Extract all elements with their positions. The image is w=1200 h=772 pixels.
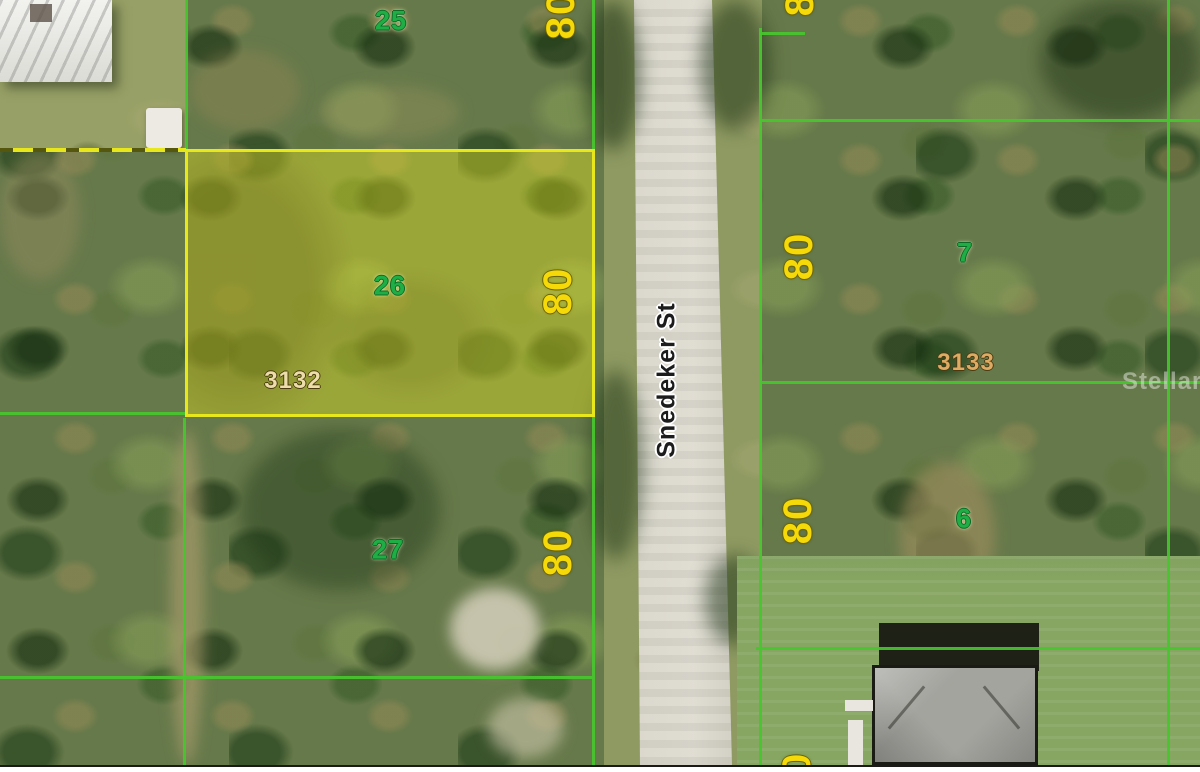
overhanging-trees — [588, 370, 643, 560]
sand-patch — [488, 698, 563, 758]
parcel-boundary-line — [756, 647, 1200, 650]
lot-number-label: 26 — [374, 273, 406, 300]
dimension-label: 80 — [780, 0, 820, 16]
parcel-boundary-line — [183, 418, 186, 765]
parcel-boundary-line — [0, 676, 592, 679]
parcel-boundary-line — [0, 412, 186, 415]
dimension-label: 80 — [538, 528, 578, 577]
building-roof-section — [30, 4, 52, 22]
watermark: StellarMLS — [1122, 368, 1200, 396]
parcel-boundary-line — [759, 28, 762, 765]
sand-patch — [450, 588, 540, 670]
clearing-patch — [0, 150, 80, 280]
lot-number-label: 7 — [957, 240, 973, 267]
sand-trail — [170, 430, 204, 765]
dimension-label: 80 — [541, 0, 581, 39]
white-vehicle — [146, 108, 182, 148]
listing-map-screenshot: 25 26 27 7 6 3132 3133 80 80 80 80 80 80… — [0, 0, 1200, 772]
metal-roof-building — [0, 0, 112, 82]
lot-number-label: 27 — [372, 537, 404, 564]
clearing-patch — [320, 85, 460, 140]
driveway — [845, 700, 873, 711]
dark-trees — [1040, 0, 1200, 120]
highlight-boundary-line — [0, 148, 186, 152]
parcel-boundary-line — [759, 119, 1200, 122]
street-name-label: Snedeker St — [655, 302, 680, 458]
parcel-boundary-line — [759, 32, 805, 35]
aerial-photo: 25 26 27 7 6 3132 3133 80 80 80 80 80 80… — [0, 0, 1200, 765]
clearing-patch — [190, 50, 300, 130]
dimension-label: 80 — [778, 496, 818, 545]
dark-trees — [240, 430, 440, 590]
lot-number-label: 25 — [375, 8, 407, 35]
dimension-label: 80 — [779, 232, 819, 281]
parcel-id-label: 3132 — [264, 369, 321, 393]
driveway — [848, 720, 863, 765]
parcel-boundary-line — [185, 0, 188, 150]
dimension-label: 80 — [538, 267, 578, 316]
dimension-label: 80 — [777, 752, 817, 765]
lot-number-label: 6 — [956, 506, 972, 533]
photo-bottom-border — [0, 765, 1200, 772]
parcel-id-label: 3133 — [937, 351, 994, 375]
